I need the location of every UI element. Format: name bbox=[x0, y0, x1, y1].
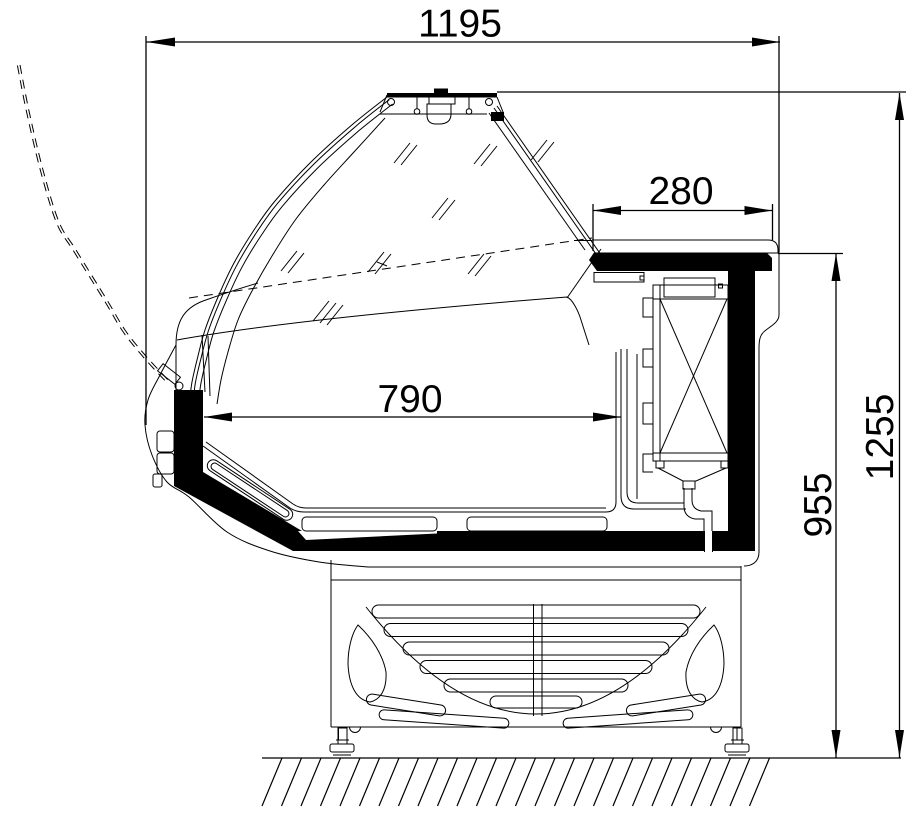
svg-text:1255: 1255 bbox=[859, 394, 902, 481]
svg-text:790: 790 bbox=[377, 378, 442, 421]
svg-text:280: 280 bbox=[648, 170, 713, 213]
svg-text:955: 955 bbox=[797, 472, 840, 537]
svg-text:1195: 1195 bbox=[418, 3, 502, 46]
